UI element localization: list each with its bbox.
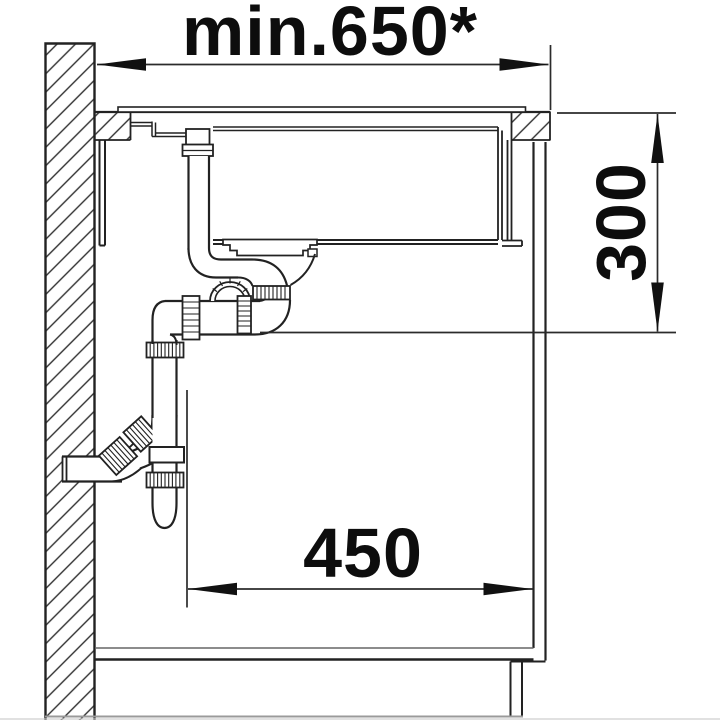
branch-union-nut <box>150 447 185 463</box>
pipe-threaded-stub <box>238 296 252 334</box>
pipe-coupling-nut <box>183 296 200 340</box>
standpipe-coupling-upper <box>147 343 184 358</box>
countertop-cut-left <box>95 113 130 141</box>
dimension-label-bottom: 450 <box>303 514 423 592</box>
sink-flange <box>118 107 526 112</box>
dimension-label-top: min.650* <box>182 0 478 70</box>
tailpiece-nut <box>253 286 290 300</box>
diagram-canvas: min.650* 450 300 <box>0 0 720 720</box>
strainer-overflow-tab <box>308 249 317 257</box>
installation-drawing: min.650* 450 300 <box>0 0 720 720</box>
hatched-wall-section <box>46 44 95 720</box>
standpipe-coupling-lower <box>147 473 184 488</box>
dimension-label-right: 300 <box>582 162 660 282</box>
countertop-cut-right <box>512 113 551 141</box>
